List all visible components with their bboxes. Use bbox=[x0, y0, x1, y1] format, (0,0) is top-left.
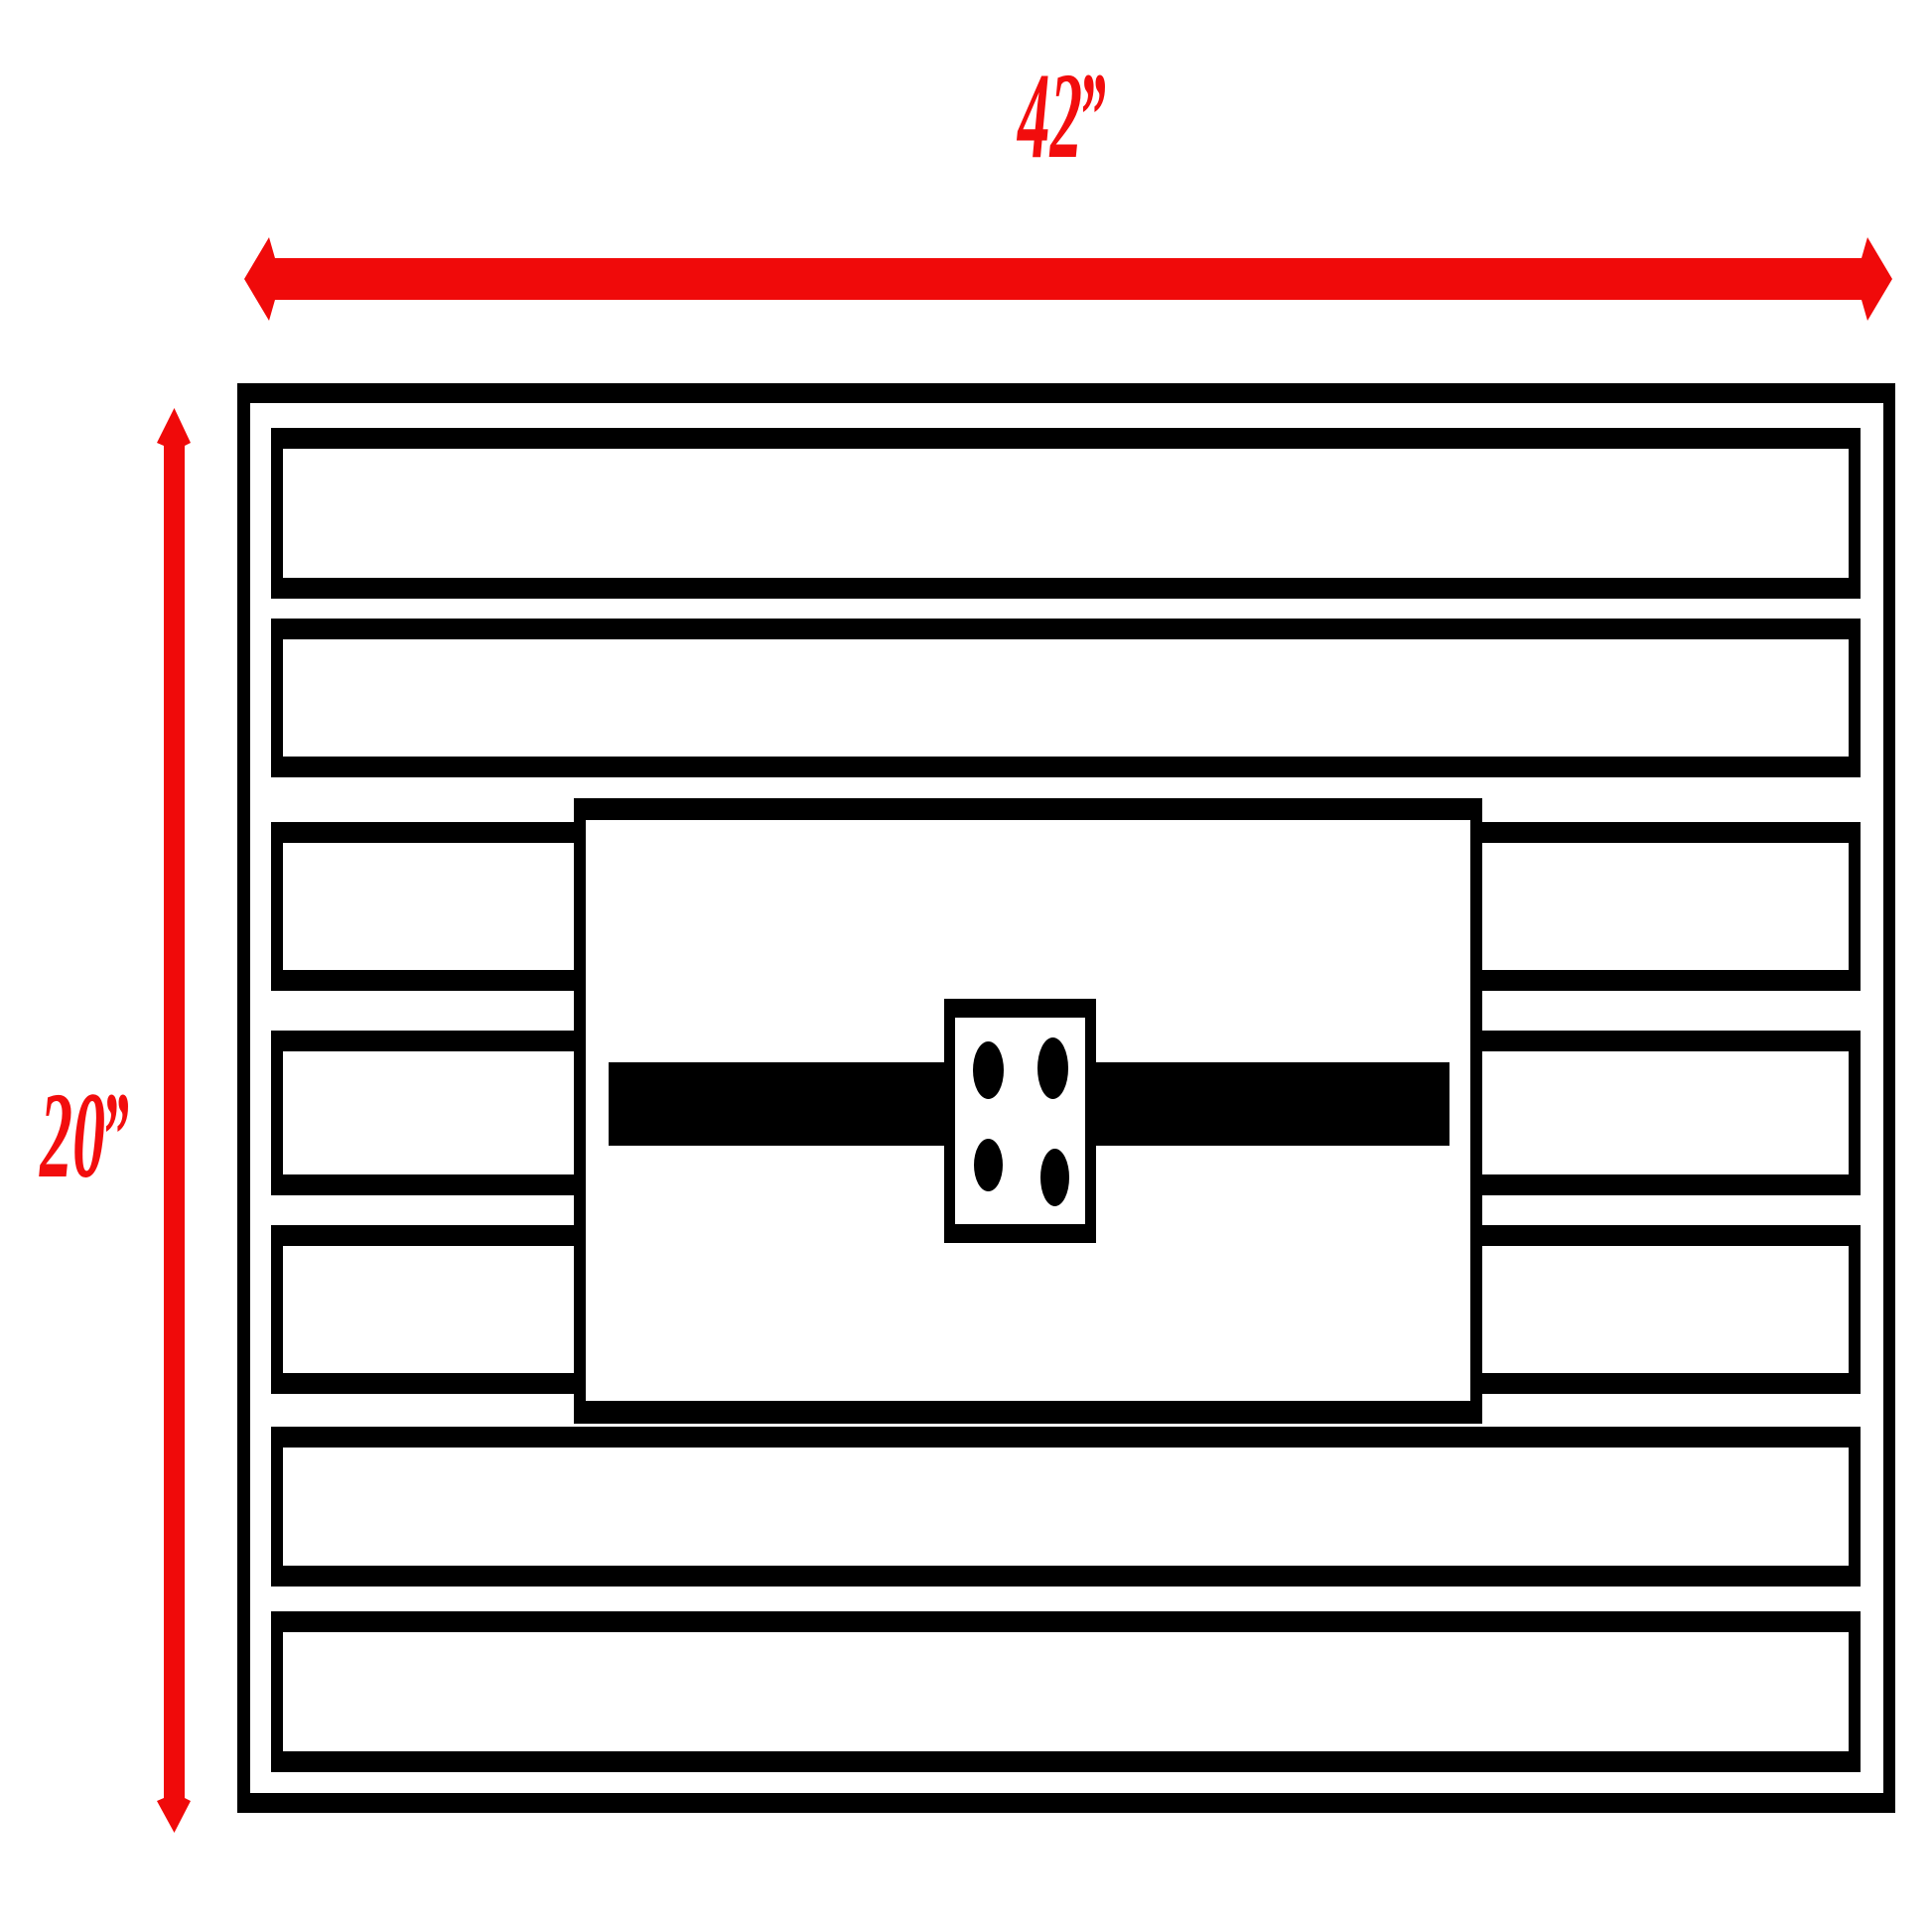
svg-text:20: 20 bbox=[39, 1067, 105, 1203]
svg-text:42: 42 bbox=[1017, 49, 1082, 184]
svg-text:”: ” bbox=[1078, 47, 1106, 184]
svg-text:”: ” bbox=[101, 1066, 129, 1203]
